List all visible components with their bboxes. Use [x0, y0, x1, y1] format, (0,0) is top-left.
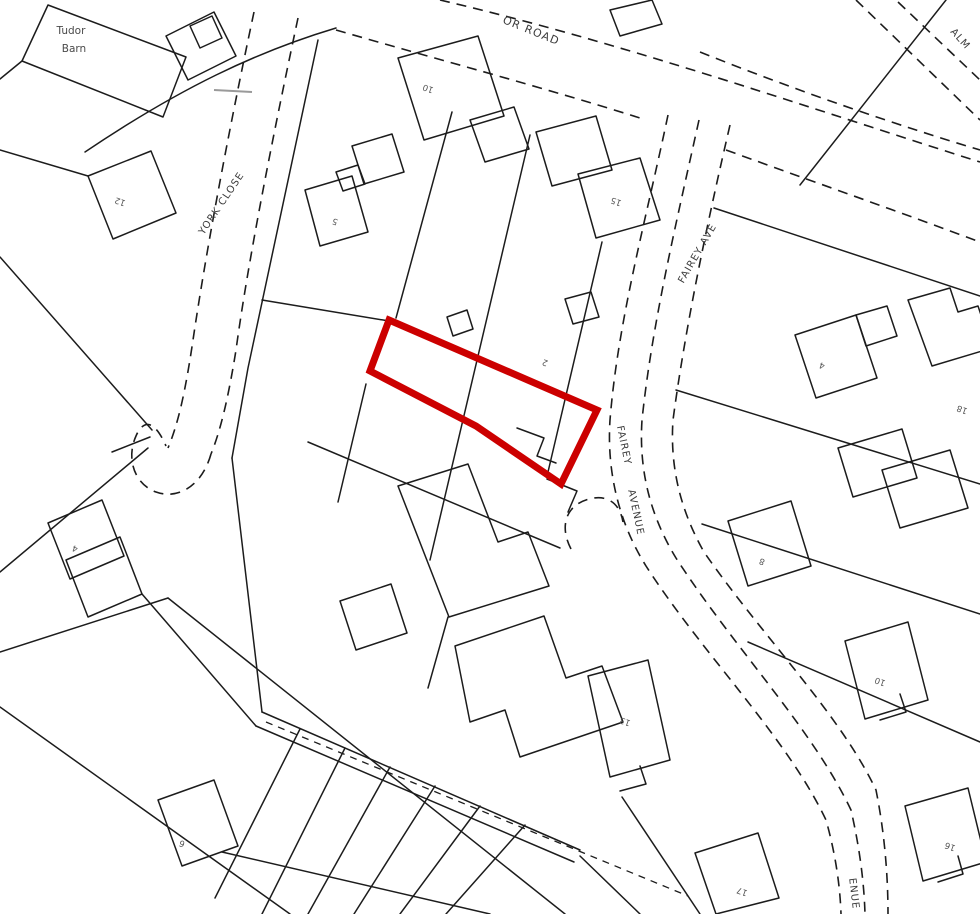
place-labels: Tudor Barn	[56, 25, 87, 55]
road-label-avenue-fragment: ENUE	[846, 877, 861, 910]
title-plan-map: OR ROAD YORK CLOSE FAIREY AVE FAIREY AVE…	[0, 0, 980, 914]
boundary-line	[232, 458, 262, 712]
dead-end-bar	[112, 437, 150, 452]
plot-number-8: 8	[758, 555, 767, 566]
boundary-line	[168, 598, 565, 914]
plot-number-10: 10	[422, 81, 436, 94]
boundary-line	[222, 852, 490, 914]
boundary-line	[0, 61, 22, 79]
plot-number-5: 5	[331, 215, 340, 226]
plot-number-6: 6	[178, 837, 187, 848]
road-label-avenue: AVENUE	[625, 489, 645, 537]
building-annex	[340, 584, 407, 650]
building-outline	[455, 616, 623, 757]
place-label-tudor: Tudor	[56, 25, 87, 37]
building-plot-8	[728, 501, 811, 586]
building-step-detail	[880, 694, 906, 720]
highlighted-plot-outline[interactable]	[370, 320, 597, 484]
boundary-line	[800, 0, 946, 185]
plot-number-4: 4	[818, 359, 827, 370]
place-label-barn: Barn	[62, 43, 86, 55]
road-label-fairey: FAIREY	[614, 425, 633, 466]
boundary-line	[232, 40, 318, 458]
plot-number-18: 18	[956, 402, 970, 415]
road-edge-alm-2	[856, 0, 980, 120]
boundary-line	[676, 390, 980, 484]
building-outline	[882, 450, 968, 528]
building-tudor-barn	[22, 5, 186, 117]
boundary-line	[748, 642, 980, 742]
plot-number-4-west: 4	[71, 542, 80, 553]
road-edge-fairey-mid	[641, 120, 865, 914]
lane-edge-south	[256, 726, 574, 862]
building-outline	[908, 288, 980, 366]
building-plot-12	[88, 151, 176, 239]
road-network	[132, 0, 980, 914]
road-edge-york-bulb	[132, 425, 211, 495]
boundary-line	[0, 707, 290, 914]
building-annex	[856, 306, 897, 346]
terrace-line	[215, 729, 300, 898]
road-labels: OR ROAD YORK CLOSE FAIREY AVE FAIREY AVE…	[196, 13, 972, 910]
boundary-line	[338, 384, 366, 502]
building-plot-10	[398, 36, 504, 140]
building-plot-16	[905, 788, 980, 881]
building-plot-17	[695, 833, 779, 914]
plot-numbers: 12 10 5 15 2 4 18 8 10 4 6 13 17 16	[71, 81, 969, 897]
plot-number-2: 2	[541, 356, 550, 367]
building-outline	[565, 292, 599, 324]
boundary-line	[548, 242, 602, 472]
building-outline	[536, 116, 612, 186]
road-label-alm-fragment: ALM	[948, 27, 972, 52]
building-outline	[610, 0, 662, 36]
road-edge-fairey-west	[609, 115, 841, 914]
boundary-line	[428, 617, 448, 688]
map-canvas[interactable]: OR ROAD YORK CLOSE FAIREY AVE FAIREY AVE…	[0, 0, 980, 914]
road-label-york-close: YORK CLOSE	[196, 170, 246, 237]
building-plot-10-south	[845, 622, 928, 719]
boundary-line	[622, 797, 700, 914]
terrace-line	[262, 748, 345, 914]
plot-number-10-south: 10	[874, 674, 888, 687]
boundary-line	[0, 150, 88, 176]
road-edge-tudor-south-east	[726, 150, 980, 242]
building-outline	[447, 310, 473, 336]
building-plot-4	[795, 315, 877, 398]
driveway-splay	[565, 498, 623, 549]
terrace-line	[446, 825, 525, 914]
boundary-line	[396, 112, 452, 318]
building-outline	[398, 464, 549, 617]
boundary-line	[0, 257, 152, 430]
plot-number-15: 15	[610, 194, 624, 207]
building-step-detail	[938, 856, 963, 882]
building-outline	[352, 134, 404, 184]
building-annex	[336, 165, 365, 191]
plot-number-17: 17	[736, 884, 750, 897]
terrace-line	[308, 767, 390, 914]
plot-number-16: 16	[944, 839, 958, 852]
boundary-line	[714, 208, 980, 296]
boundary-line	[580, 856, 640, 914]
faint-mark	[214, 90, 252, 92]
plot-number-12: 12	[114, 194, 128, 207]
boundary-line	[142, 594, 256, 726]
road-edge-york-east	[211, 18, 298, 454]
boundary-line	[262, 300, 389, 321]
terrace-line	[354, 786, 435, 914]
road-edge-tudor-south-west	[336, 30, 640, 118]
road-label-tudor-road: OR ROAD	[501, 13, 562, 48]
buildings	[22, 0, 980, 914]
building-annex	[470, 107, 529, 162]
lane-edge-north	[262, 712, 580, 850]
boundary-line	[702, 524, 980, 614]
